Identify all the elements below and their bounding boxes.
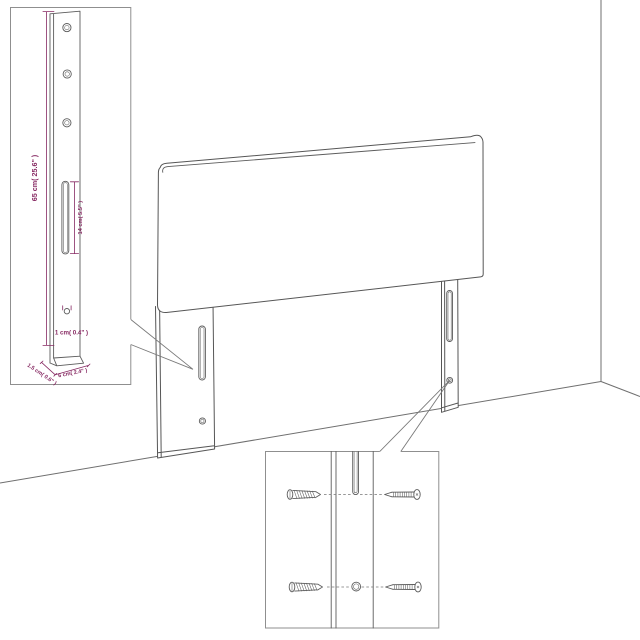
diagram-svg: 65 cm( 25.6" ) 14 cm( 5.5" ) 1 cm( 0.4" … — [0, 0, 640, 640]
headboard-panel — [158, 135, 484, 312]
hardware-detail-inset — [266, 452, 439, 629]
leg-detail-inset: 65 cm( 25.6" ) 14 cm( 5.5" ) 1 cm( 0.4" … — [11, 8, 131, 387]
left-leg-face — [156, 302, 215, 458]
panel-outline — [158, 135, 484, 312]
left-leg — [156, 302, 215, 458]
right-leg-face — [442, 278, 459, 412]
height-dimension-label: 65 cm( 25.6" ) — [30, 154, 39, 201]
floor-line-right — [601, 382, 640, 397]
hardware-inset-leader-lines — [380, 380, 450, 451]
slot-dimension-label: 14 cm( 5.5" ) — [78, 201, 84, 235]
headboard-assembly-diagram: 65 cm( 25.6" ) 14 cm( 5.5" ) 1 cm( 0.4" … — [0, 0, 640, 640]
inset-background — [11, 8, 131, 385]
hole-dimension-label: 1 cm( 0.4" ) — [55, 330, 88, 337]
right-leg — [442, 278, 459, 412]
inset-background — [266, 452, 439, 629]
